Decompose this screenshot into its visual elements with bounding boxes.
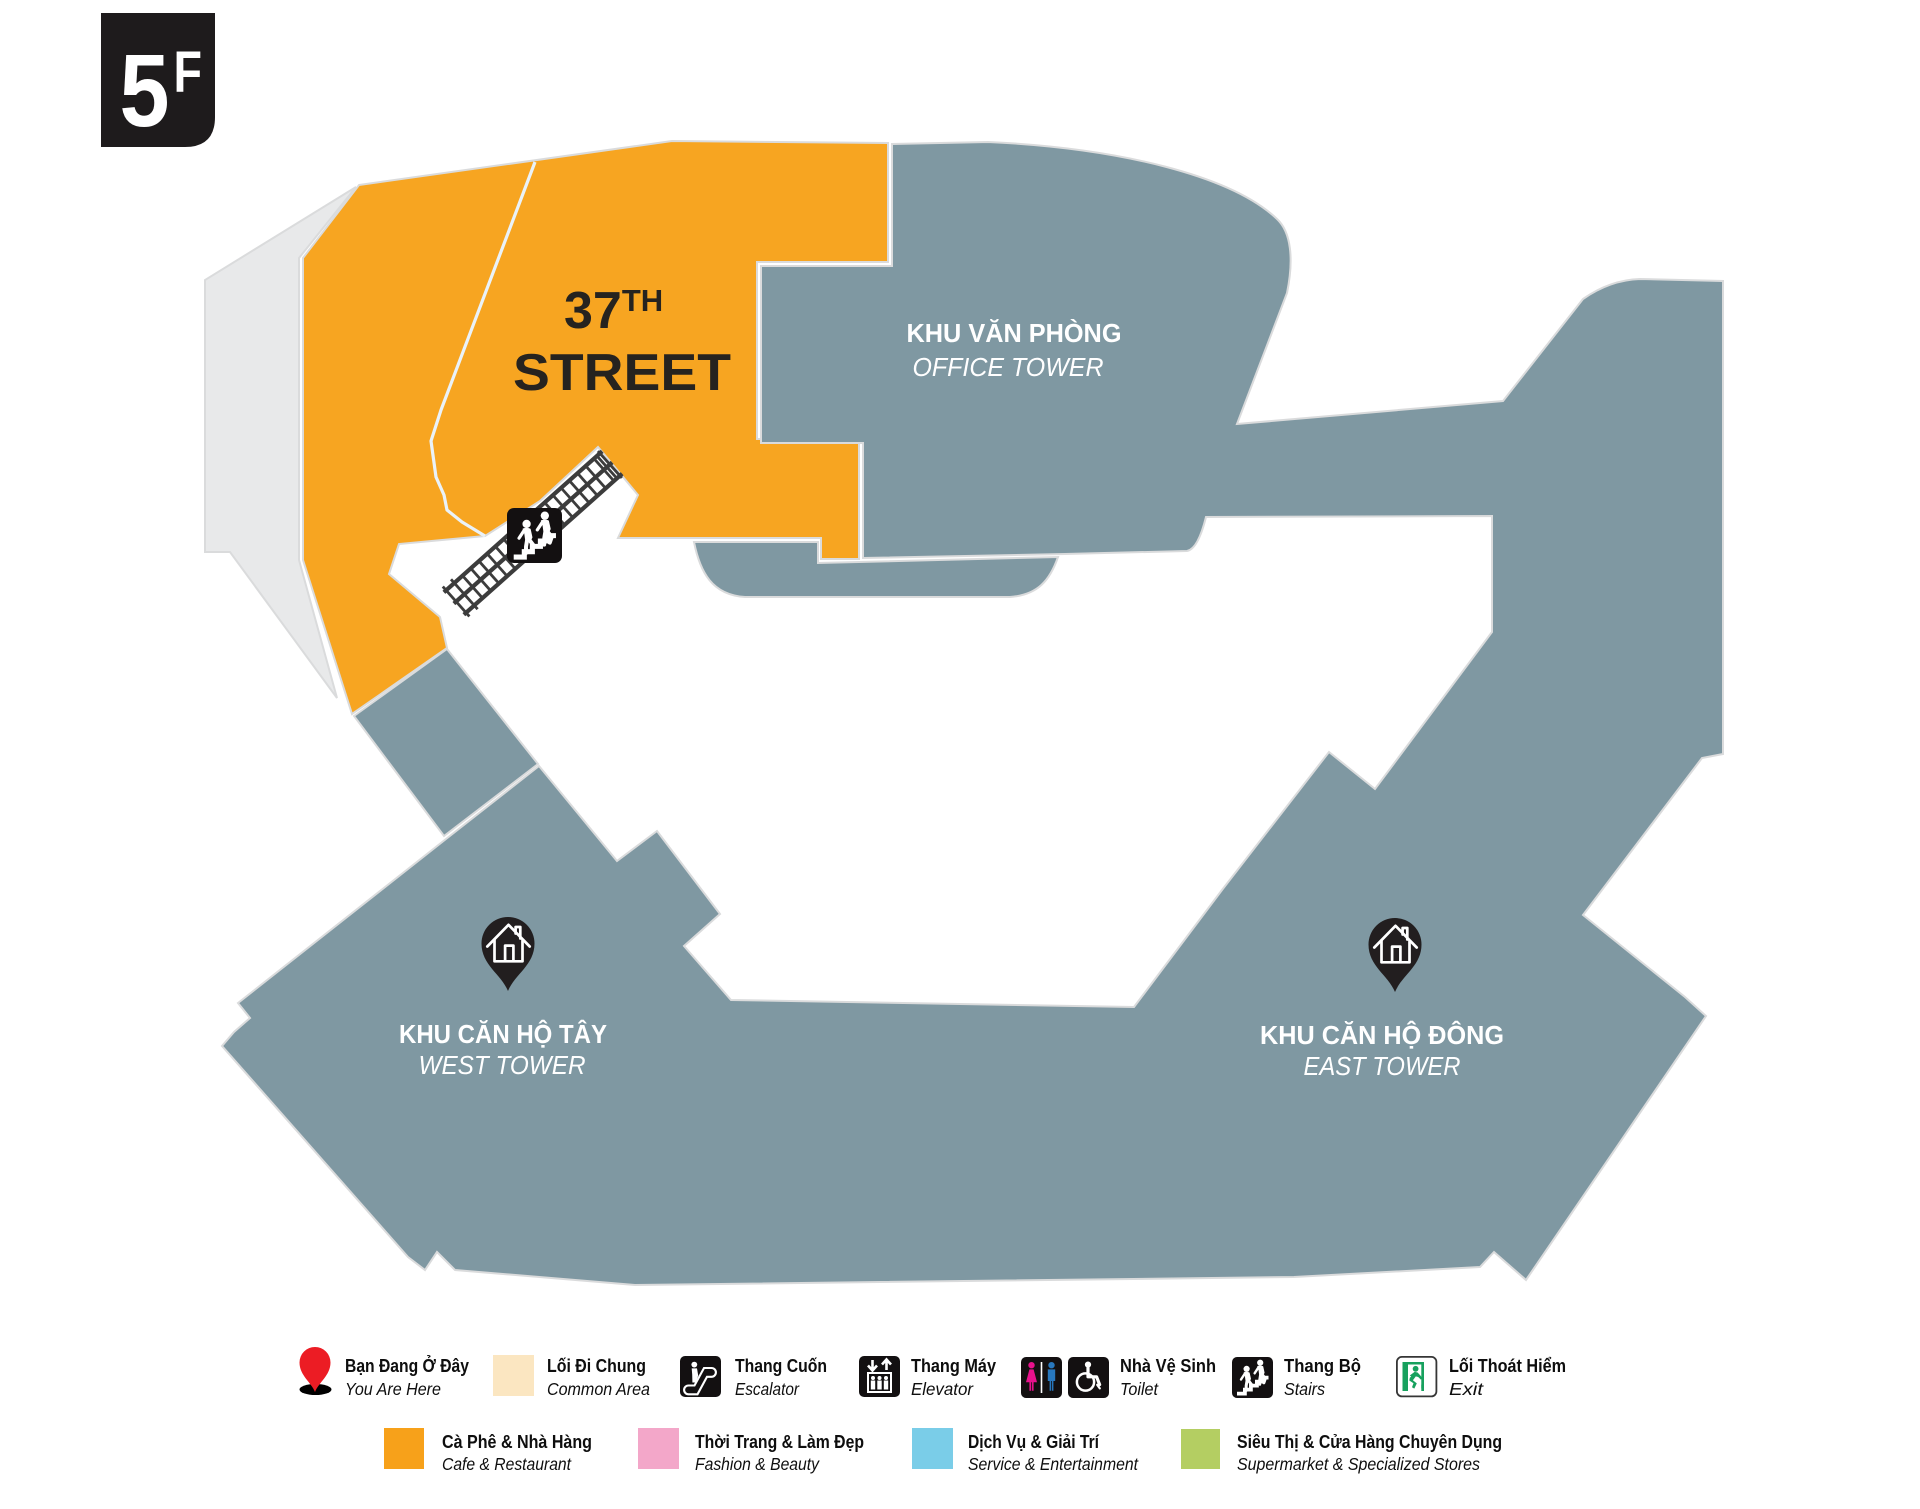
svg-text:KHU CĂN HỘ TÂY: KHU CĂN HỘ TÂY (399, 1019, 607, 1049)
svg-text:KHU CĂN HỘ ĐÔNG: KHU CĂN HỘ ĐÔNG (1260, 1020, 1504, 1050)
svg-text:Elevator: Elevator (911, 1379, 974, 1399)
svg-text:EAST TOWER: EAST TOWER (1304, 1051, 1461, 1081)
svg-text:Cafe & Restaurant: Cafe & Restaurant (442, 1454, 572, 1474)
svg-text:Lối Thoát Hiểm: Lối Thoát Hiểm (1449, 1356, 1566, 1376)
svg-text:Supermarket & Specialized Stor: Supermarket & Specialized Stores (1237, 1454, 1480, 1474)
svg-text:Cà Phê & Nhà Hàng: Cà Phê & Nhà Hàng (442, 1432, 592, 1452)
svg-text:Fashion & Beauty: Fashion & Beauty (695, 1454, 820, 1474)
svg-text:Escalator: Escalator (735, 1379, 800, 1399)
svg-text:Service & Entertainment: Service & Entertainment (968, 1454, 1139, 1474)
svg-text:WEST TOWER: WEST TOWER (419, 1050, 586, 1080)
svg-text:STREET: STREET (513, 344, 731, 402)
svg-text:Stairs: Stairs (1284, 1379, 1325, 1399)
svg-text:Thang Bộ: Thang Bộ (1284, 1356, 1361, 1376)
svg-text:OFFICE TOWER: OFFICE TOWER (913, 352, 1104, 382)
svg-text:You Are Here: You Are Here (345, 1379, 441, 1399)
svg-text:Nhà Vệ Sinh: Nhà Vệ Sinh (1120, 1356, 1216, 1376)
svg-text:Thang Cuốn: Thang Cuốn (735, 1356, 827, 1376)
svg-text:Thang Máy: Thang Máy (911, 1356, 996, 1376)
svg-text:Dịch Vụ & Giải Trí: Dịch Vụ & Giải Trí (968, 1432, 1100, 1452)
svg-text:F: F (174, 40, 203, 105)
svg-text:Siêu Thị & Cửa Hàng Chuyên Dụn: Siêu Thị & Cửa Hàng Chuyên Dụng (1237, 1432, 1502, 1452)
svg-text:Exit: Exit (1449, 1379, 1484, 1399)
svg-text:Thời Trang & Làm Đẹp: Thời Trang & Làm Đẹp (695, 1432, 864, 1452)
svg-text:5: 5 (120, 33, 170, 148)
svg-text:KHU VĂN PHÒNG: KHU VĂN PHÒNG (907, 318, 1122, 348)
svg-text:Toilet: Toilet (1120, 1379, 1159, 1399)
svg-text:Common Area: Common Area (547, 1379, 650, 1399)
svg-text:Bạn Đang Ở Đây: Bạn Đang Ở Đây (345, 1355, 469, 1376)
svg-text:Lối Đi Chung: Lối Đi Chung (547, 1356, 646, 1376)
